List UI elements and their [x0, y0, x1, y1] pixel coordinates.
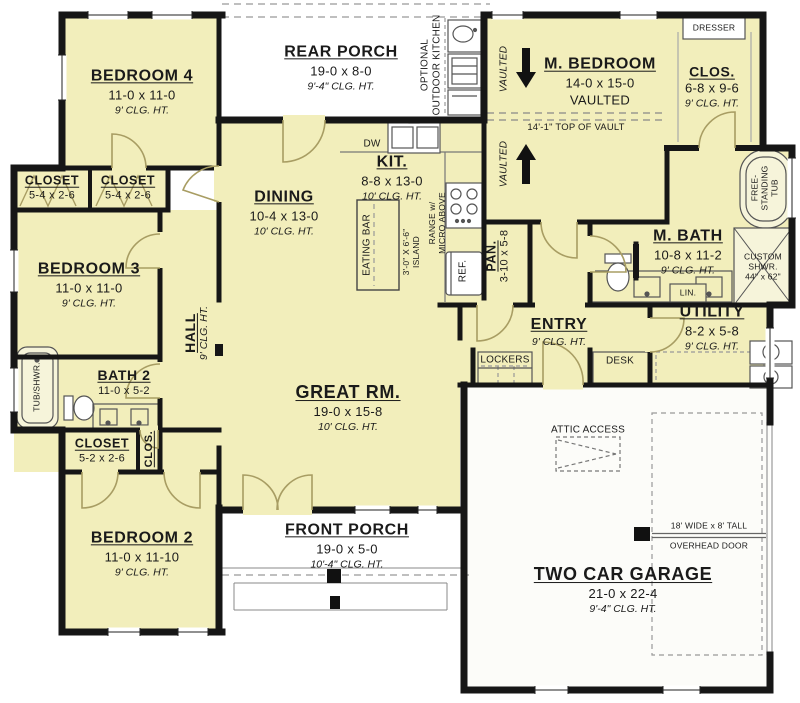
label-eating-bar: EATING BAR [361, 214, 374, 276]
label-custom-shower: CUSTOM SHWR. 44" x 62" [744, 252, 782, 281]
label-freestanding-tub: FREE- STANDING TUB [750, 166, 779, 211]
room-label-master-closet: CLOS. 6-8 x 9-6 9' CLG. HT. [685, 63, 739, 112]
room-label-bedroom4: BEDROOM 4 11-0 x 11-0 9' CLG. HT. [91, 66, 193, 117]
room-label-rear-porch: REAR PORCH 19-0 x 8-0 9'-4" CLG. HT. [284, 42, 398, 93]
label-vaulted-upper: VAULTED [498, 46, 511, 92]
floor-plan: BEDROOM 4 11-0 x 11-0 9' CLG. HT. REAR P… [0, 0, 800, 703]
label-refrigerator: REF. [457, 260, 470, 282]
room-label-garage: TWO CAR GARAGE 21-0 x 22-4 9'-4" CLG. HT… [534, 563, 712, 617]
label-top-of-vault: 14'-1" TOP OF VAULT [527, 122, 624, 134]
room-label-dining: DINING 10-4 x 13-0 10' CLG. HT. [249, 187, 318, 238]
room-label-hall: HALL 9' CLG. HT. [182, 306, 210, 360]
label-dresser: DRESSER [693, 22, 736, 33]
room-label-kitchen: KIT. 8-8 x 13-0 10' CLG. HT. [361, 152, 423, 203]
room-label-hall-closet: CLOS. [142, 431, 156, 468]
bath2-toilet-icon [64, 396, 94, 420]
label-dishwasher: DW [363, 138, 380, 151]
room-label-master-bedroom: M. BEDROOM 14-0 x 15-0 VAULTED [544, 55, 656, 110]
front-walkway [222, 568, 462, 610]
room-label-entry: ENTRY 9' CLG. HT. [531, 315, 588, 349]
label-lockers: LOCKERS [480, 354, 529, 367]
room-label-great-room: GREAT RM. 19-0 x 15-8 10' CLG. HT. [295, 381, 400, 435]
label-island: 3'-0" X 6'-6" ISLAND [402, 229, 422, 276]
label-desk: DESK [606, 355, 634, 368]
label-outdoor-kitchen: OPTIONAL OUTDOOR KITCHEN [420, 15, 443, 116]
room-label-bedroom2: BEDROOM 2 11-0 x 11-10 9' CLG. HT. [91, 528, 193, 579]
range-icon [446, 183, 482, 228]
room-label-bath2: BATH 2 11-0 x 5-2 [97, 366, 150, 398]
label-range: RANGE w/ MICRO ABOVE [428, 192, 448, 254]
room-label-front-porch: FRONT PORCH 19-0 x 5-0 10'-4" CLG. HT. [285, 520, 409, 571]
walkway-post [330, 596, 340, 609]
label-overhead-door-size: 18' WIDE x 8' TALL [671, 520, 747, 531]
outdoor-kitchen-icon [448, 20, 481, 115]
room-label-pantry: PAN. 3-10 x 5-8 [484, 230, 511, 283]
hall-jamb [215, 344, 223, 356]
label-attic-access: ATTIC ACCESS [551, 424, 625, 437]
room-label-utility: UTILITY 8-2 x 5-8 9' CLG. HT. [680, 302, 745, 353]
room-label-bedroom3: BEDROOM 3 11-0 x 11-0 9' CLG. HT. [38, 259, 140, 310]
room-label-closet1: CLOSET 5-4 x 2-6 [25, 173, 79, 204]
label-overhead-door: OVERHEAD DOOR [670, 540, 748, 551]
label-vaulted-lower: VAULTED [498, 141, 511, 187]
room-label-master-bath: M. BATH 10-8 x 11-2 9' CLG. HT. [653, 226, 723, 277]
label-linen: LIN. [680, 287, 696, 298]
room-label-closet2: CLOSET 5-4 x 2-6 [101, 173, 155, 204]
room-label-closet3: CLOSET 5-2 x 2-6 [75, 436, 129, 467]
label-tub-shower: TUB/SHWR. [31, 362, 42, 412]
